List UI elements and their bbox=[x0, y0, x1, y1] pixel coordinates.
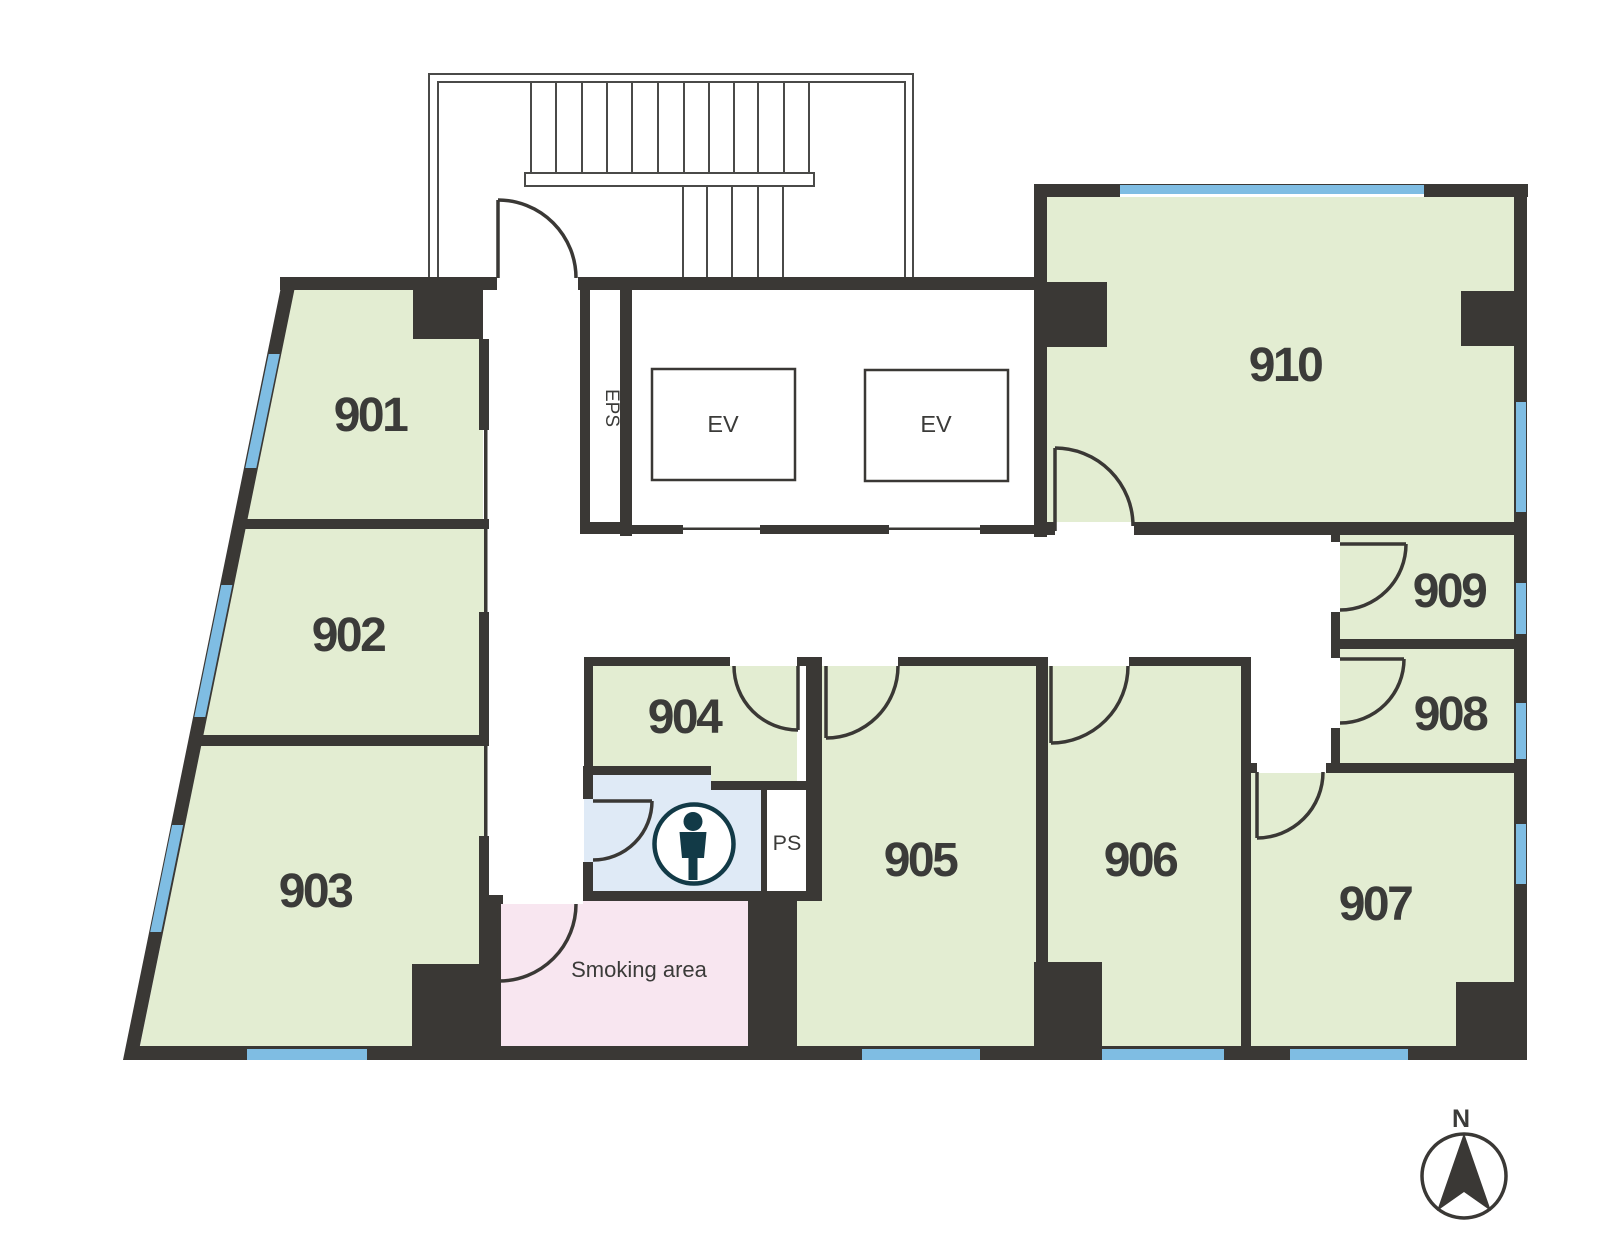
svg-text:902: 902 bbox=[312, 609, 385, 662]
svg-text:PS: PS bbox=[773, 831, 802, 855]
svg-text:910: 910 bbox=[1249, 339, 1322, 392]
svg-text:905: 905 bbox=[884, 834, 958, 887]
svg-text:906: 906 bbox=[1104, 834, 1177, 887]
svg-text:903: 903 bbox=[279, 865, 352, 918]
svg-text:909: 909 bbox=[1413, 565, 1486, 618]
svg-text:901: 901 bbox=[334, 389, 408, 442]
svg-text:EV: EV bbox=[707, 411, 739, 437]
svg-text:908: 908 bbox=[1414, 688, 1488, 741]
svg-text:907: 907 bbox=[1339, 878, 1412, 931]
svg-text:N: N bbox=[1452, 1105, 1470, 1133]
svg-text:EPS: EPS bbox=[601, 389, 622, 427]
svg-text:EV: EV bbox=[920, 411, 952, 437]
svg-text:904: 904 bbox=[648, 691, 723, 744]
svg-text:Smoking area: Smoking area bbox=[571, 957, 708, 982]
